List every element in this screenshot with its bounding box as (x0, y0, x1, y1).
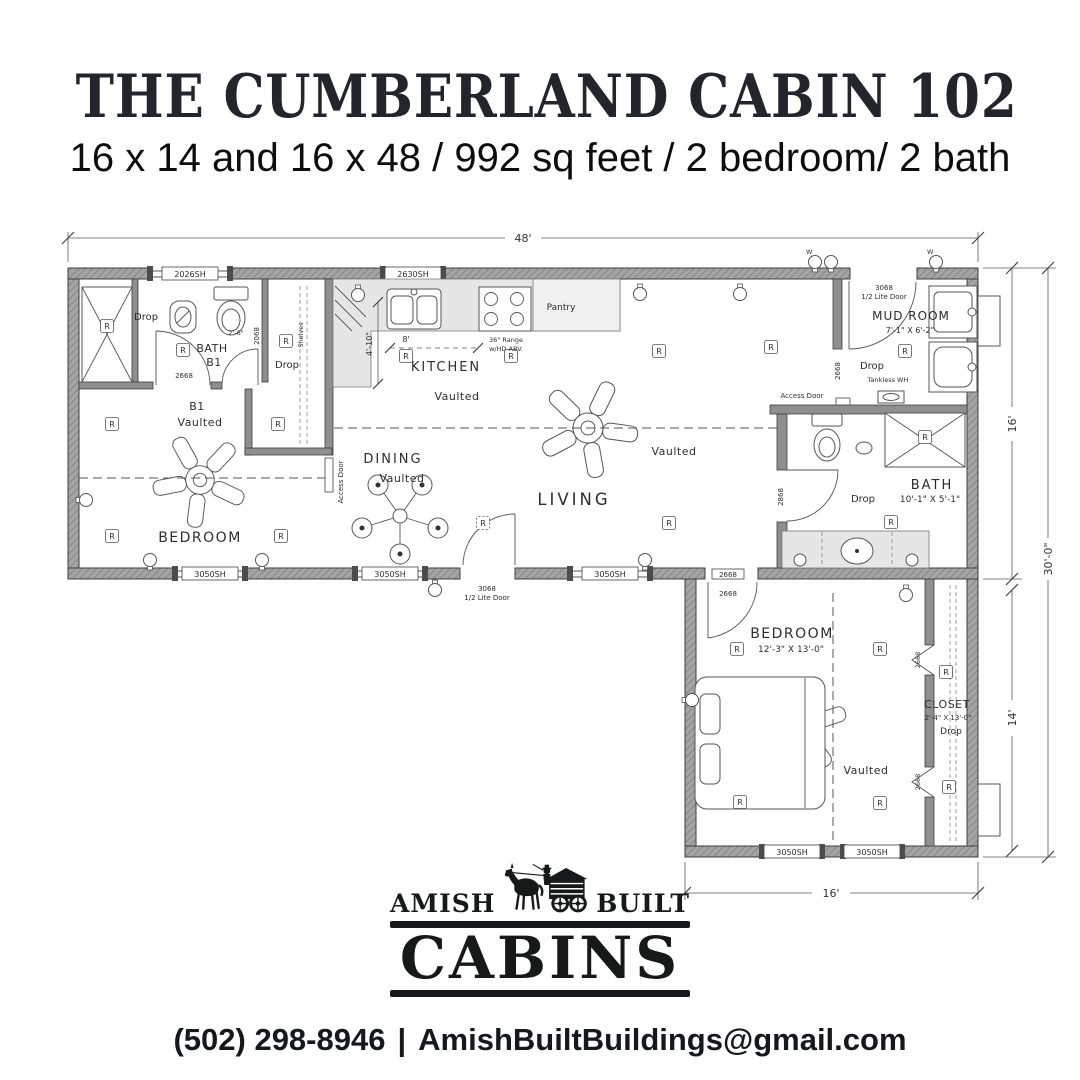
window-label: 3050SH (776, 848, 807, 857)
window-label: 3050SH (194, 570, 225, 579)
company-logo: AMISH (390, 856, 690, 997)
contact-email: AmishBuiltBuildings@gmail.com (418, 1022, 906, 1057)
toilet-bath2 (812, 414, 842, 461)
room-size-bath2: 10'-1" X 5'-1" (900, 495, 960, 505)
note-vaulted: Vaulted (843, 764, 888, 777)
svg-text:R: R (180, 346, 186, 355)
note-vaulted: Vaulted (434, 390, 479, 403)
note-tankless: Tankless WH (867, 376, 909, 384)
note-drop: Drop (275, 360, 299, 371)
svg-text:R: R (946, 783, 952, 792)
window-3050sh-living: 3050SH (567, 566, 653, 581)
recessed-light-symbol: R (280, 335, 293, 348)
svg-text:R: R (508, 352, 514, 361)
note-pantry: Pantry (547, 303, 576, 313)
logo-divider-bar (390, 990, 690, 997)
note-drop: Drop (860, 361, 884, 372)
window-2026sh: 2026SH (147, 266, 233, 281)
switch-label: W (806, 248, 813, 256)
recessed-light-symbol: R (899, 345, 912, 358)
exterior-unit (978, 296, 1000, 346)
logo-word-built: BUILT (596, 891, 690, 920)
dryer (929, 342, 977, 392)
svg-text:R: R (283, 337, 289, 346)
room-size-closet: 2'-4" X 13'-0" (925, 714, 972, 722)
recessed-light-symbol: R (919, 431, 932, 444)
svg-text:R: R (877, 799, 883, 808)
recessed-light-symbol: R (940, 666, 953, 679)
logo-word-cabins: CABINS (400, 929, 680, 987)
recessed-light-symbol: R (653, 345, 666, 358)
door-label-hall-2668: 2668 (834, 362, 842, 380)
toilet-b1 (214, 287, 248, 335)
exterior-unit (978, 784, 1000, 836)
svg-text:R: R (480, 519, 486, 528)
note-range1: 36" Range (489, 336, 523, 344)
room-label-closet: CLOSET (924, 698, 970, 711)
recessed-light-symbol: R (106, 530, 119, 543)
door-label: 2668 (914, 652, 922, 669)
svg-text:R: R (666, 519, 672, 528)
room-label-bath1: BATH (196, 342, 227, 355)
svg-text:R: R (768, 343, 774, 352)
access-panel (325, 458, 333, 492)
kitchen-sink (387, 289, 441, 329)
note-vaulted: Vaulted (177, 416, 222, 429)
room-label-b1: B1 (189, 400, 205, 413)
recessed-light-symbol: R (275, 530, 288, 543)
note-access-door: Access Door (780, 392, 823, 400)
vanity-bath2 (782, 531, 929, 568)
dim-main-width: 48' (514, 232, 531, 245)
svg-text:R: R (877, 645, 883, 654)
note-vaulted: Vaulted (379, 472, 424, 485)
sink-bath2 (856, 442, 872, 454)
range (479, 287, 531, 331)
note-drop: Drop (851, 494, 875, 505)
svg-text:R: R (734, 645, 740, 654)
window-label: 2026SH (174, 270, 205, 279)
logo-word-amish: AMISH (390, 891, 495, 920)
floor-vent (878, 391, 904, 403)
recessed-light-symbol: R (477, 517, 490, 530)
note-range2: w/HD ABV. (489, 345, 523, 353)
window-label: 3050SH (374, 570, 405, 579)
dim-8: 8' (402, 335, 409, 344)
door-label: 2668 (914, 774, 922, 791)
contact-phone: (502) 298-8946 (173, 1022, 385, 1057)
room-label-bedroom1: BEDROOM (158, 530, 242, 546)
chandelier-icon (352, 475, 448, 564)
cabin-flyer: THE CUMBERLAND CABIN 102 16 x 14 and 16 … (0, 0, 1080, 1080)
recessed-light-symbol: R (943, 781, 956, 794)
recessed-light-symbol: R (765, 341, 778, 354)
recessed-light-symbol: R (101, 320, 114, 333)
horse-wagon-icon (501, 856, 590, 920)
dim-wing-depth: 14' (1006, 709, 1019, 726)
recessed-light-symbol: R (731, 643, 744, 656)
window-3050sh-wing-right: 3050SH (840, 844, 905, 859)
room-label-bath2: BATH (911, 478, 954, 493)
dim-4-10: 4'-10" (365, 332, 374, 356)
door-label: 2868 (777, 488, 785, 506)
svg-text:R: R (275, 420, 281, 429)
svg-text:R: R (922, 433, 928, 442)
svg-text:R: R (403, 352, 409, 361)
window-3050sh-dining: 3050SH (352, 566, 428, 581)
switch-label: W (927, 248, 934, 256)
contact-separator: | (397, 1022, 406, 1057)
svg-text:R: R (278, 532, 284, 541)
svg-text:R: R (109, 420, 115, 429)
note-drop: Drop (940, 727, 962, 737)
svg-text:R: R (902, 347, 908, 356)
access-panel (836, 398, 850, 405)
dim-total-depth: 30'-0" (1042, 542, 1055, 575)
bed (695, 677, 825, 809)
recessed-light-symbol: R (734, 796, 747, 809)
door-label: 2668 (175, 372, 193, 380)
note-drop: Drop (134, 312, 158, 323)
note-access-door: Access Door (337, 460, 345, 503)
contact-line: (502) 298-8946|AmishBuiltBuildings@gmail… (0, 1022, 1080, 1058)
recessed-light-symbol: R (885, 516, 898, 529)
svg-text:R: R (888, 518, 894, 527)
svg-text:R: R (109, 532, 115, 541)
room-label-bath1-b1: B1 (206, 356, 222, 369)
recessed-light-symbol: R (874, 643, 887, 656)
door-label: 2668 (719, 590, 737, 598)
logo-top-row: AMISH (390, 856, 690, 920)
room-size-mudroom: 7'-1" X 6'-2" (886, 326, 934, 335)
recessed-light-symbol: R (272, 418, 285, 431)
window-label: 3050SH (594, 570, 625, 579)
room-size-bedroom2: 12'-3" X 13'-0" (758, 645, 824, 655)
svg-text:R: R (943, 668, 949, 677)
room-label-kitchen: KITCHEN (411, 360, 481, 375)
window-3050sh-bedroom1: 3050SH (172, 566, 248, 581)
room-label-dining: DINING (363, 452, 422, 467)
room-label-mudroom: MUD ROOM (872, 309, 950, 323)
door-label: 1/2 Lite Door (861, 293, 907, 301)
door-bedroom1-bath: 2668 (156, 331, 210, 385)
svg-text:R: R (737, 798, 743, 807)
window-label: 3050SH (856, 848, 887, 857)
door-label: 2668 (719, 571, 737, 579)
dim-wing-width: 16' (822, 887, 839, 900)
recessed-light-symbol: R (874, 797, 887, 810)
door-label: 3068 (875, 284, 893, 292)
window-3050sh-wing-left: 3050SH (759, 844, 825, 859)
room-label-living: LIVING (537, 490, 610, 509)
dim-main-depth: 16' (1006, 415, 1019, 432)
recessed-light-symbol: R (663, 517, 676, 530)
dim-2-6: 2'-6" (228, 329, 243, 337)
room-label-bedroom2: BEDROOM (750, 626, 834, 642)
door-label: 1/2 Lite Door (464, 594, 510, 602)
door-label: 3068 (478, 585, 496, 593)
shower-b1 (82, 287, 132, 382)
note-shelves: Shelves (297, 322, 305, 348)
svg-text:R: R (656, 347, 662, 356)
window-label: 2630SH (397, 270, 428, 279)
door-label-2068: 2068 (253, 327, 261, 345)
svg-text:R: R (104, 322, 110, 331)
note-vaulted: Vaulted (651, 445, 696, 458)
door-bath2: 2868 (777, 470, 838, 521)
exhaust-fan-icon (170, 301, 196, 333)
recessed-light-symbol: R (177, 344, 190, 357)
recessed-light-symbol: R (106, 418, 119, 431)
